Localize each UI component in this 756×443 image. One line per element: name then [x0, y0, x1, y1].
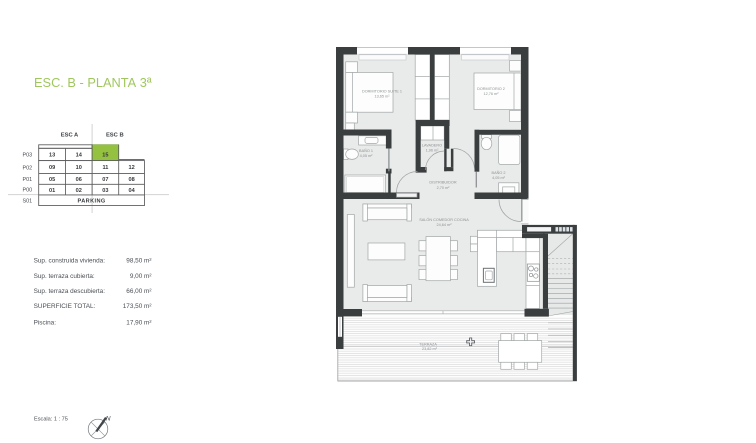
svg-text:BAÑO 1: BAÑO 1: [359, 148, 373, 153]
svg-text:24,64 m²: 24,64 m²: [437, 223, 453, 227]
svg-text:13,65 m²: 13,65 m²: [375, 95, 391, 99]
svg-text:DORMITORIO SUITE 1: DORMITORIO SUITE 1: [362, 90, 402, 94]
svg-text:TERRAZA: TERRAZA: [419, 342, 437, 346]
svg-text:2,70 m²: 2,70 m²: [437, 186, 451, 190]
svg-text:SALÓN COMEDOR COCINA: SALÓN COMEDOR COCINA: [419, 217, 469, 222]
svg-text:DISTRIBUIDOR: DISTRIBUIDOR: [429, 181, 456, 185]
svg-text:4,05 m²: 4,05 m²: [360, 154, 374, 158]
svg-text:4,05 m²: 4,05 m²: [492, 176, 506, 180]
svg-text:12,76 m²: 12,76 m²: [484, 92, 500, 96]
svg-text:LAVADERO: LAVADERO: [422, 144, 442, 148]
svg-text:1,96 m²: 1,96 m²: [426, 149, 440, 153]
svg-text:23,82 m²: 23,82 m²: [422, 347, 438, 351]
svg-text:DORMITORIO 2: DORMITORIO 2: [477, 87, 505, 91]
svg-text:BAÑO 2: BAÑO 2: [492, 170, 506, 175]
